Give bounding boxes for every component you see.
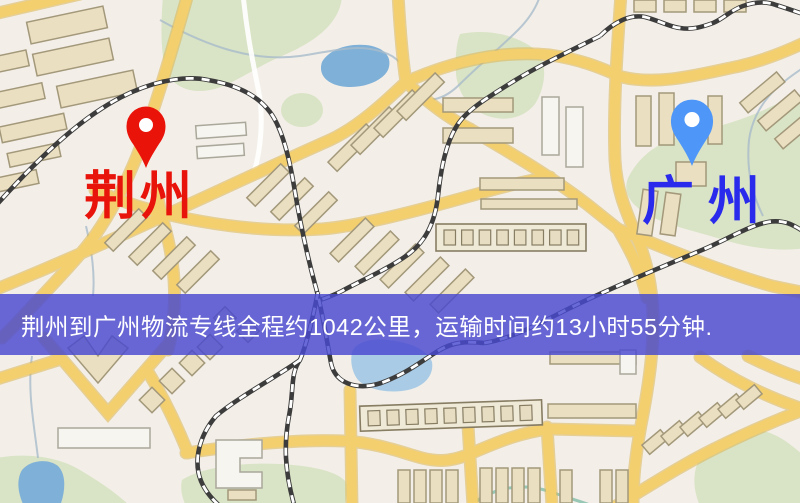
info-banner: 荆州到广州物流专线全程约1042公里，运输时间约13小时55分钟. — [0, 294, 800, 355]
destination-label: 广州 — [642, 175, 774, 231]
banner-text: 荆州到广州物流专线全程约1042公里，运输时间约13小时55分钟. — [0, 308, 713, 342]
pond-bottom-left — [18, 461, 64, 503]
map-canvas: 荆州 广州 荆州到广州物流专线全程约1042公里，运输时间约13小时55分钟. — [0, 0, 800, 503]
freight-strip-north — [436, 224, 586, 251]
freight-strip-south — [360, 400, 543, 431]
map-image — [0, 0, 800, 503]
origin-label: 荆州 — [84, 170, 196, 226]
